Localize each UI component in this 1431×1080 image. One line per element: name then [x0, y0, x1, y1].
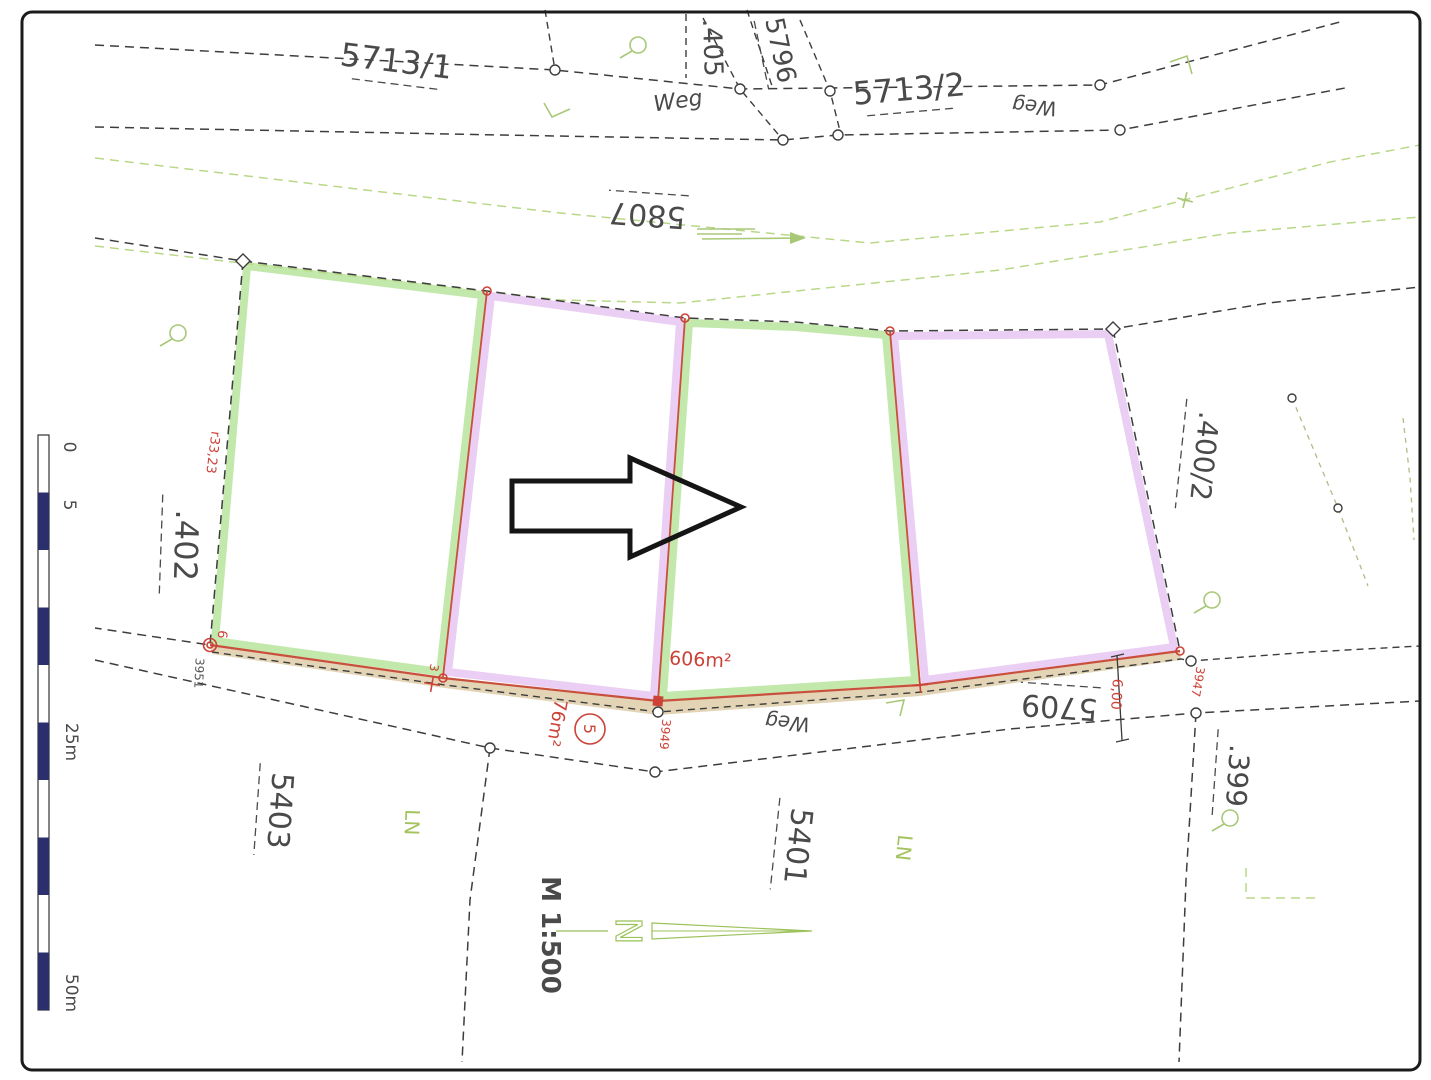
label-5796: 5796	[754, 14, 802, 90]
bush-symbol-q-left	[160, 325, 186, 346]
svg-text:.405: .405	[696, 18, 728, 77]
svg-text:.399: .399	[1219, 743, 1256, 807]
label-point-3947: 3947	[1188, 665, 1207, 698]
label-point-6: 6	[214, 630, 230, 640]
label-5403: 5403	[254, 763, 300, 858]
scale-tick-0: 0	[59, 442, 79, 453]
parcel3-highlight	[663, 323, 915, 696]
svg-text:5796: 5796	[758, 15, 801, 86]
circled-point-5: 5	[575, 714, 605, 744]
label-5713-2: 5713/2	[851, 65, 967, 117]
boundary-5403-5401	[462, 748, 490, 1062]
svg-text:5: 5	[580, 724, 599, 734]
green-dashes-right-edge	[1403, 418, 1414, 540]
scale-tick-25m: 25m	[61, 723, 81, 761]
parcel4-highlight	[894, 334, 1174, 680]
svg-text:.400/2: .400/2	[1183, 410, 1225, 503]
green-road-line-lower	[95, 217, 1420, 303]
label-weg-right: Weg	[1011, 93, 1058, 121]
boundary-diagonal-1	[545, 10, 555, 70]
map-border-frame	[22, 12, 1420, 1070]
label-area-606: 606m²	[669, 647, 732, 672]
svg-text:5401: 5401	[776, 806, 819, 886]
boundary-p1-p2	[443, 291, 487, 677]
road-line-top-lower	[95, 88, 1345, 140]
boundary-p3-p4	[890, 331, 920, 685]
label-dist-r3323: r33,23	[202, 430, 222, 474]
svg-text:5807: 5807	[608, 194, 687, 234]
highlight-arrow	[512, 458, 741, 557]
boundary-399	[1179, 713, 1196, 1062]
parcel-right-boundary	[1113, 329, 1180, 651]
parcel-top-boundary	[95, 238, 1420, 331]
cadastral-map-canvas: 0 5 25m 50m N 5713/1 .405 5796 5713/2 58…	[0, 0, 1431, 1080]
green-cross-symbol	[1175, 190, 1194, 209]
label-weg-top: Weg	[652, 86, 704, 118]
label-point-3951: 3951	[191, 658, 207, 689]
scale-tick-50m: 50m	[61, 974, 81, 1012]
label-5807: 5807	[606, 190, 689, 234]
label-ln-right: LN	[891, 833, 918, 861]
label-map-scale: M 1:500	[535, 876, 565, 994]
north-letter: N	[607, 918, 648, 945]
label-weg-bottom: Weg	[764, 709, 811, 737]
scale-bar: 0 5 25m 50m	[38, 435, 81, 1012]
green-corner-bottom-right	[1246, 868, 1316, 898]
green-road-line-upper	[95, 145, 1420, 243]
cadastral-map-page: 0 5 25m 50m N 5713/1 .405 5796 5713/2 58…	[0, 0, 1431, 1080]
label-405: .405	[696, 18, 728, 77]
parcel2-highlight	[448, 296, 680, 696]
tree-check-symbol-bottom	[886, 700, 904, 716]
svg-text:5403: 5403	[259, 771, 299, 850]
north-arrow: N	[556, 918, 812, 945]
label-400-2: .400/2	[1175, 399, 1226, 513]
bush-symbol-q-right-lower	[1212, 810, 1238, 831]
boundary-diagonal-4	[800, 20, 841, 135]
label-5713-1: 5713/1	[338, 35, 455, 90]
label-dist-600: 6,00	[1107, 678, 1125, 710]
bush-symbol-q-top	[620, 37, 646, 58]
weg-south-line	[95, 660, 1420, 772]
svg-text:.402: .402	[166, 509, 206, 582]
label-ln-left: LN	[400, 809, 425, 836]
scale-tick-5: 5	[59, 500, 79, 511]
parcel1-highlight	[215, 266, 482, 672]
svg-text:5709: 5709	[1020, 686, 1099, 726]
svg-text:5713/2: 5713/2	[851, 65, 966, 113]
boundary-p2-p3	[658, 318, 685, 701]
label-point-3949: 3949	[657, 719, 674, 751]
bush-symbol-q-right-upper	[1194, 592, 1220, 613]
tree-check-symbol-top-left	[544, 103, 570, 117]
measure-line-400-2	[1292, 398, 1368, 586]
label-399: .399	[1212, 729, 1257, 822]
survey-points-red	[204, 287, 1185, 706]
label-402: .402	[159, 495, 206, 596]
label-area-76: 76m²	[542, 698, 571, 749]
label-5709: 5709	[1018, 682, 1101, 726]
label-5401: 5401	[770, 798, 819, 894]
